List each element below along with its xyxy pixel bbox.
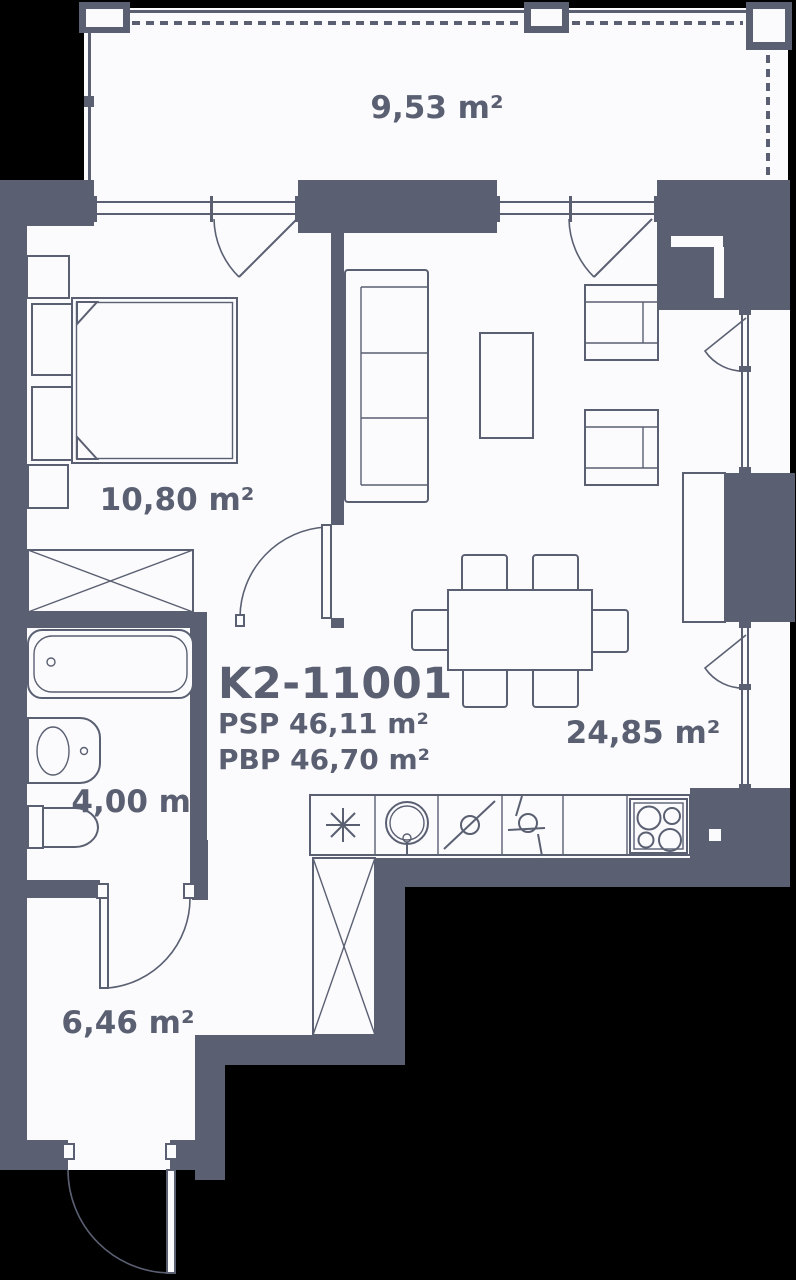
bathroom-top-wall (0, 612, 207, 628)
bed (72, 298, 237, 463)
duct-notch (671, 236, 723, 247)
nightstand (27, 256, 69, 298)
bedside-cabinet (32, 387, 72, 460)
pbp-label: PBP 46,70 m² (218, 743, 430, 776)
psp-label: PSP 46,11 m² (218, 707, 429, 740)
column-right (746, 2, 792, 50)
bedroom-area-label: 10,80 m² (100, 482, 255, 518)
sofa (345, 270, 428, 502)
entrance-threshold (68, 1140, 170, 1170)
north-wall-mid (298, 180, 497, 233)
unit-title: K2-11001 (218, 659, 453, 709)
hallway-floor (0, 1065, 225, 1140)
east-wall-block (725, 473, 795, 622)
kitchen-counter (310, 795, 690, 855)
southeast-wall-block (690, 788, 790, 887)
column-left (79, 2, 130, 33)
closet-right-wall (375, 858, 405, 1065)
column-middle (524, 2, 569, 33)
under-counter-wall (375, 858, 695, 887)
armchair (585, 285, 658, 360)
floorplan-canvas: 9,53 m² 10,80 m² 4,00 m² 24,85 m² 6,46 m… (0, 0, 796, 1280)
corridor-bottom-wall (195, 1035, 405, 1065)
kitchen (310, 795, 690, 1035)
living-area-label: 24,85 m² (566, 715, 721, 751)
bathroom-area-label: 4,00 m² (71, 784, 204, 820)
bedroom-living-wall (331, 226, 344, 525)
sink (28, 718, 100, 783)
armchair (585, 410, 658, 485)
west-wall (0, 180, 27, 1170)
duct-notch (714, 247, 724, 298)
bedside-cabinet (32, 304, 72, 375)
hallway-area-label: 6,46 m² (61, 1005, 194, 1041)
coffee-table (480, 333, 533, 438)
south-wall-left (0, 1140, 68, 1170)
closet-x-symbol (313, 858, 375, 1035)
nightstand (28, 465, 68, 508)
dining-table (448, 590, 592, 670)
tall-cabinet (683, 473, 725, 622)
bathtub (28, 630, 193, 698)
balcony-area-label: 9,53 m² (370, 90, 503, 126)
fridge-symbol (326, 808, 360, 842)
bathroom-bottom-wall (0, 880, 100, 898)
wardrobe-x-symbol (28, 550, 193, 612)
